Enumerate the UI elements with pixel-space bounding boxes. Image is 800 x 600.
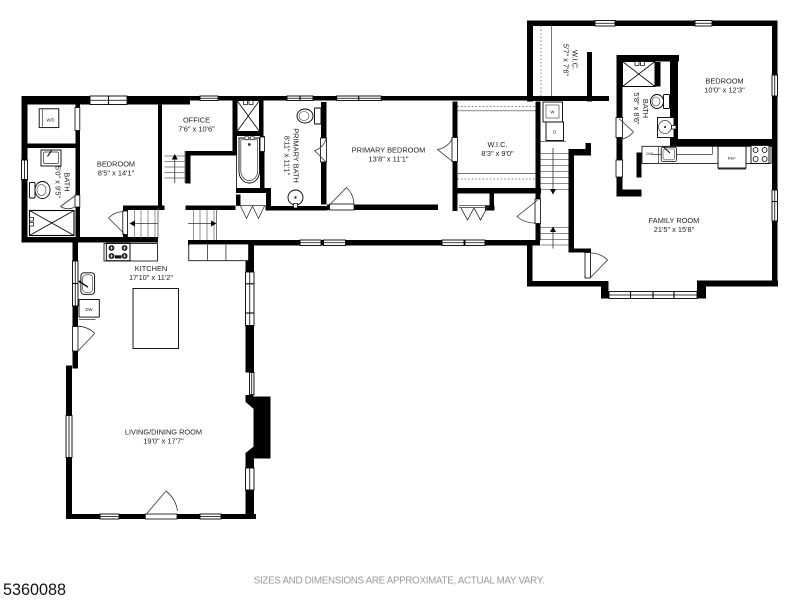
svg-text:5'8" x 8'6": 5'8" x 8'6" (632, 92, 641, 125)
svg-text:BEDROOM: BEDROOM (97, 159, 135, 168)
svg-text:PRIMARY BATH: PRIMARY BATH (292, 128, 301, 183)
svg-text:PRIMARY BEDROOM: PRIMARY BEDROOM (352, 146, 426, 155)
svg-text:10'0" x 12'3": 10'0" x 12'3" (704, 86, 745, 95)
svg-text:8'11" x 11'1": 8'11" x 11'1" (283, 136, 292, 176)
svg-text:BATH: BATH (62, 172, 71, 191)
svg-text:D: D (553, 130, 556, 135)
svg-text:OFFICE: OFFICE (183, 116, 210, 125)
svg-text:5'0" x 9'5": 5'0" x 9'5" (53, 166, 62, 199)
svg-text:DW: DW (646, 151, 653, 156)
svg-text:5'7" x 7'6": 5'7" x 7'6" (562, 44, 571, 77)
svg-text:19'0" x 17'7": 19'0" x 17'7" (143, 436, 184, 445)
svg-text:W/D: W/D (46, 117, 54, 122)
svg-text:BEDROOM: BEDROOM (705, 77, 743, 86)
svg-text:8'3" x 9'0": 8'3" x 9'0" (481, 149, 514, 158)
svg-text:REF: REF (728, 156, 737, 161)
svg-text:LIVING/DINING ROOM: LIVING/DINING ROOM (125, 427, 202, 436)
svg-text:FAMILY ROOM: FAMILY ROOM (649, 216, 700, 225)
svg-text:8'5" x 14'1": 8'5" x 14'1" (98, 168, 135, 177)
svg-text:KITCHEN: KITCHEN (135, 264, 167, 273)
svg-text:W.I.C.: W.I.C. (571, 50, 580, 70)
svg-text:5360088: 5360088 (3, 581, 66, 599)
svg-text:DW: DW (86, 307, 93, 312)
svg-text:13'8" x 11'1": 13'8" x 11'1" (369, 155, 409, 164)
svg-text:W.I.C.: W.I.C. (487, 140, 507, 149)
svg-text:21'5" x 15'8": 21'5" x 15'8" (654, 225, 695, 234)
svg-text:W: W (551, 110, 555, 115)
svg-text:7'6" x 10'6": 7'6" x 10'6" (178, 125, 215, 134)
svg-text:17'10" x 11'2": 17'10" x 11'2" (129, 273, 173, 282)
svg-text:SIZES AND DIMENSIONS ARE APPRO: SIZES AND DIMENSIONS ARE APPROXIMATE, AC… (254, 576, 545, 587)
svg-text:BATH: BATH (641, 99, 650, 118)
